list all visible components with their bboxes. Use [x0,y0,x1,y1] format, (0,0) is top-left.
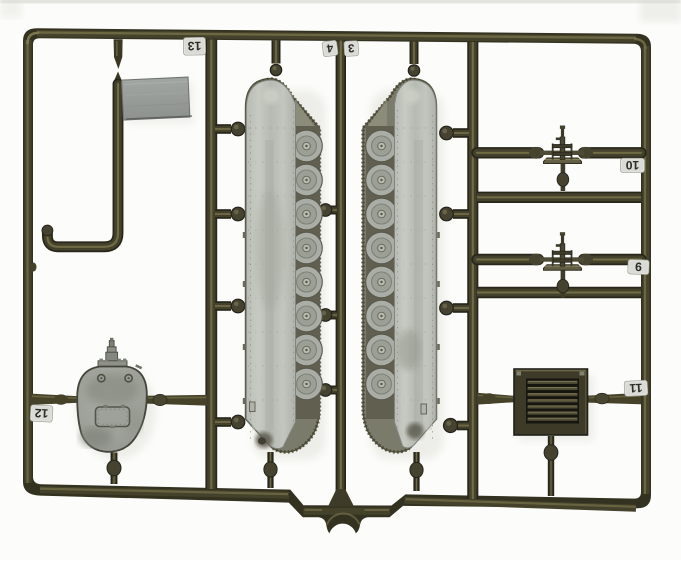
svg-text:12: 12 [34,406,48,421]
svg-text:11: 11 [629,381,643,396]
svg-text:9: 9 [635,259,642,273]
svg-text:13: 13 [187,39,201,53]
svg-text:3: 3 [348,41,355,53]
svg-text:10: 10 [626,158,640,172]
